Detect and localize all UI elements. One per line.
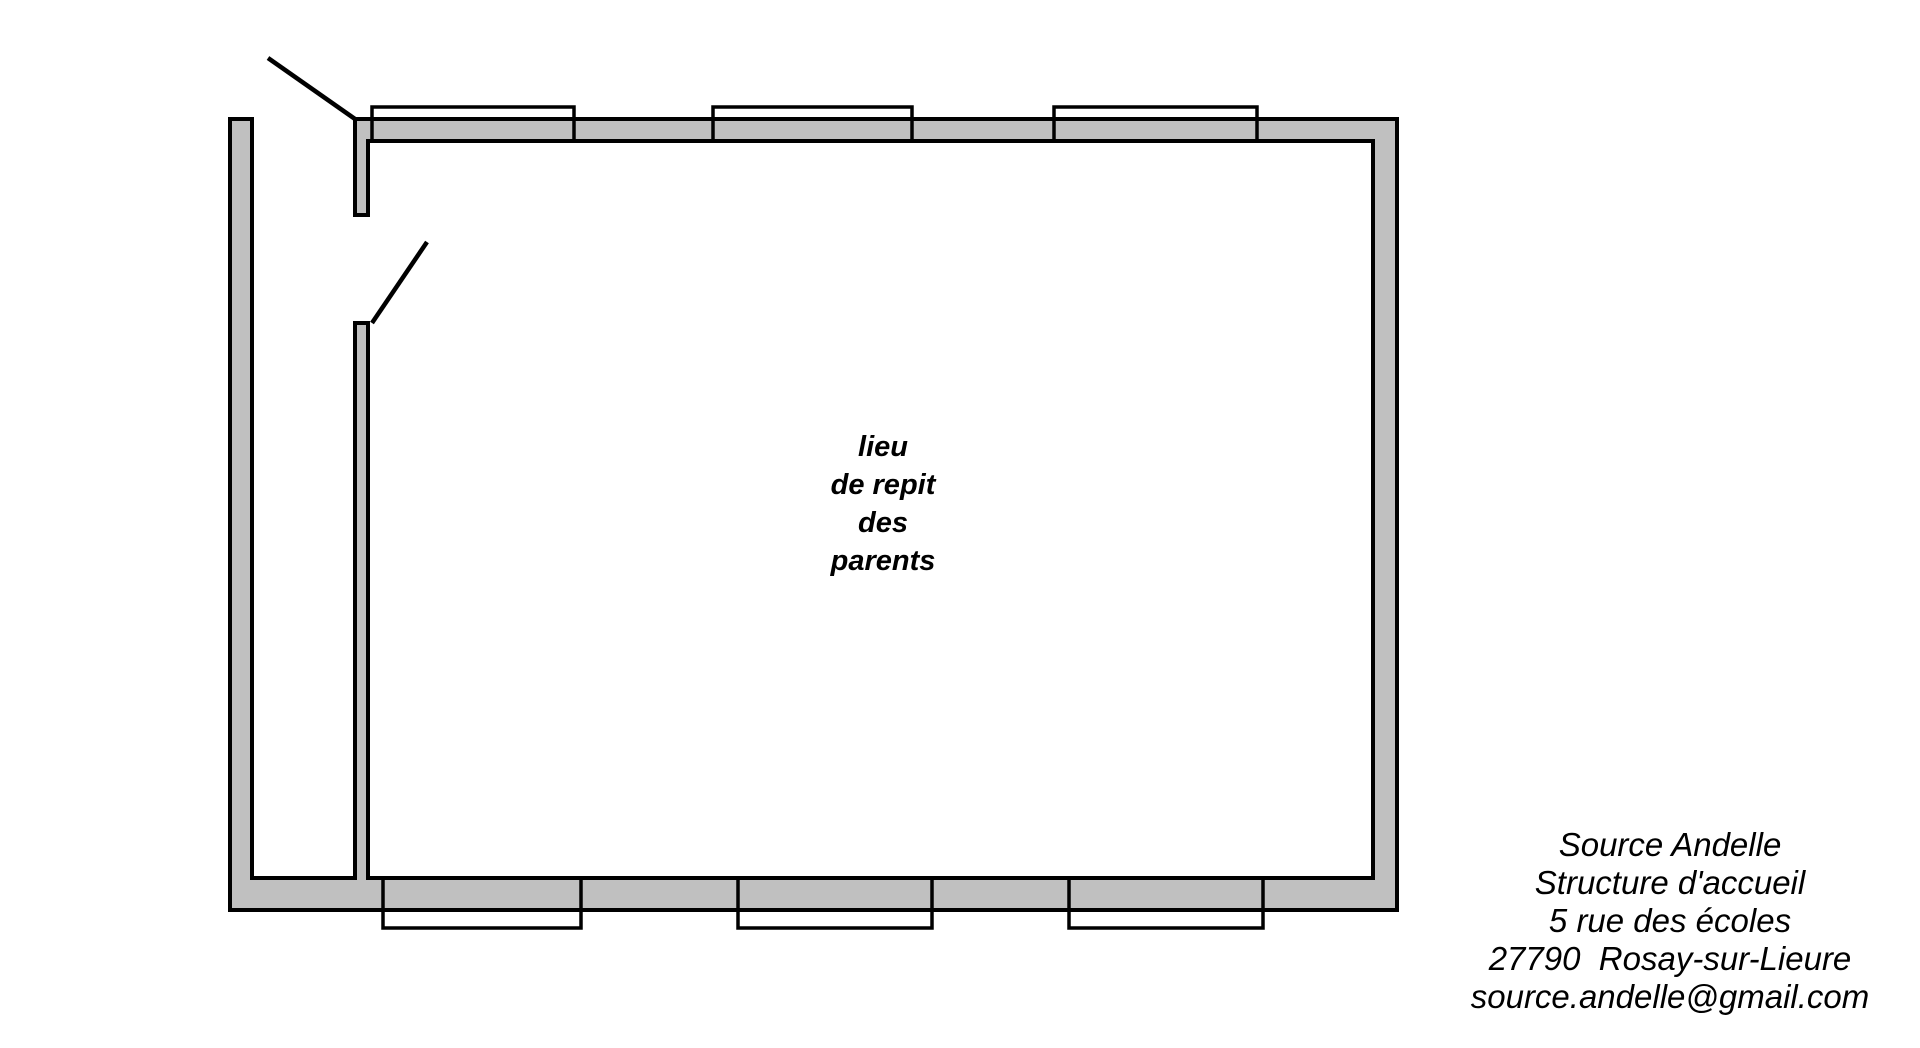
room-label-line-3: des [733,504,1033,542]
floor-plan-page: lieu de repit des parents Source Andelle… [0,0,1920,1048]
source-street: 5 rue des écoles [1420,902,1920,940]
source-name: Source Andelle [1420,826,1920,864]
door-leaf-room [372,242,427,323]
room-label-line-1: lieu [733,428,1033,466]
room-label: lieu de repit des parents [733,428,1033,580]
source-type: Structure d'accueil [1420,864,1920,902]
door-leaf-entrance [268,58,355,119]
source-city: 27790 Rosay-sur-Lieure [1420,940,1920,978]
source-address-block: Source Andelle Structure d'accueil 5 rue… [1420,826,1920,1016]
source-email: source.andelle@gmail.com [1420,978,1920,1016]
room-label-line-2: de repit [733,466,1033,504]
room-label-line-4: parents [733,542,1033,580]
